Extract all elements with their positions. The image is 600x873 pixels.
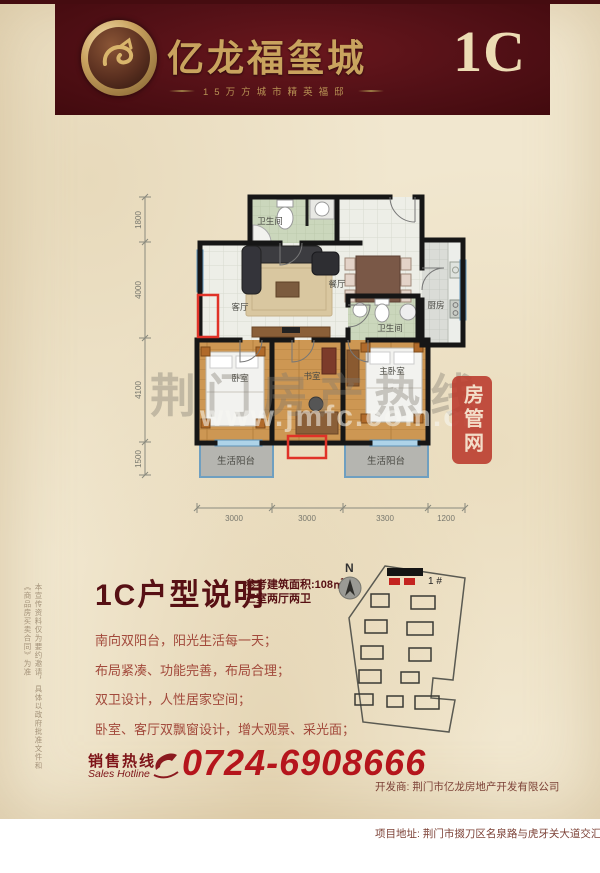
flourish-right [358, 90, 384, 92]
room-label-living: 客厅 [231, 302, 249, 312]
room-label-bath-mid: 卫生间 [377, 323, 403, 333]
brand-title: 亿龙福玺城 [167, 28, 367, 82]
room-label-kitchen: 厨房 [427, 300, 444, 310]
brand-tagline: 15万方城市精英福邸 [203, 84, 350, 98]
address-line: 项目地址: 荆门市掇刀区名泉路与虎牙关大道交汇处 [375, 827, 600, 843]
header-banner: 亿龙福玺城 15万方城市精英福邸 1C [55, 4, 550, 115]
site-boundary [349, 566, 465, 732]
watermark-url: www.jmfc.com.cn [200, 400, 482, 434]
area-note: 参考建筑面积:108㎡ [245, 578, 344, 592]
developer-line: 开发商: 荆门市亿龙房地产开发有限公司 [375, 780, 600, 796]
dim-bottom-4: 1200 [437, 514, 455, 523]
dim-left-2: 4000 [134, 281, 143, 299]
site-building-label: 1 # [428, 576, 442, 587]
description-bullets: 南向双阳台，阳光生活每一天； 布局紧凑、功能完善，布局合理； 双卫设计，人性居家… [95, 626, 355, 744]
site-highlight-building: 1 # [387, 568, 442, 587]
site-plan: N 1 # [333, 556, 483, 756]
room-label-dining: 餐厅 [328, 279, 346, 289]
description-notes: 参考建筑面积:108㎡ 三室两厅两卫 [245, 578, 344, 606]
phone-icon [150, 748, 182, 782]
dim-bottom-1: 3000 [225, 514, 243, 523]
floor-plan: 卫生间 客厅 餐厅 厨房 卫生间 卧室 书室 主卧室 生活阳台 生活阳台 180… [130, 180, 490, 535]
dim-left-4: 1500 [134, 450, 143, 468]
flourish-left [169, 90, 195, 92]
dim-bottom-2: 3000 [298, 514, 316, 523]
compass-label: N [345, 561, 354, 575]
room-label-balcony-left: 生活阳台 [217, 455, 255, 467]
seal-stamp: 房管网 [452, 376, 492, 464]
hotline-label-en: Sales Hotline [88, 768, 150, 780]
dragon-swirl-icon [81, 20, 157, 96]
developer-info: 开发商: 荆门市亿龙房地产开发有限公司 项目地址: 荆门市掇刀区名泉路与虎牙关大… [375, 749, 600, 873]
dim-bottom-3: 3300 [376, 514, 394, 523]
brand-tagline-row: 15万方城市精英福邸 [169, 84, 384, 98]
site-buildings [355, 594, 439, 709]
brand-logo-icon [81, 20, 157, 96]
unit-code: 1C [453, 18, 526, 85]
poster-page: 亿龙福玺城 15万方城市精英福邸 1C [0, 0, 600, 819]
dim-left-1: 1800 [134, 211, 143, 229]
fine-print: 本宣传资料仅为要约邀请，具体以政府批准文件和《商品房买卖合同》为准 [22, 583, 44, 773]
dim-left-3: 4100 [134, 381, 143, 399]
description-title: 1C户型说明 [95, 570, 265, 614]
room-label-bath-top: 卫生间 [257, 216, 283, 226]
room-label-balcony-right: 生活阳台 [367, 455, 405, 467]
layout-note: 三室两厅两卫 [245, 592, 344, 606]
